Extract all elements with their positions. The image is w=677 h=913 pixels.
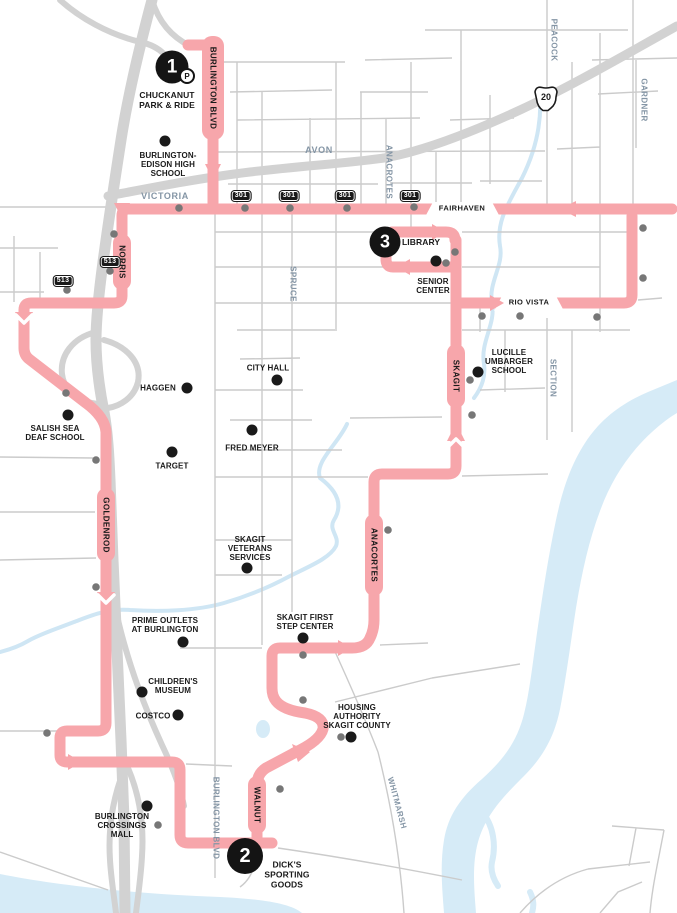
stop-dot [337,733,345,741]
landmark-dot-target [167,447,178,458]
stop-dot [343,204,351,212]
arrow-east-firststep [338,640,352,656]
stop-dot [466,376,474,384]
landmark-label-fred-meyer: FRED MEYER [225,443,278,452]
stop-dot [63,286,71,294]
street-label-burlington-blvd-south: BURLINGTON BLVD [211,777,220,860]
landmark-dot-senior-center [431,256,442,267]
landmark-label-housing-authority: HOUSING AUTHORITY SKAGIT COUNTY [323,703,391,731]
stop-dot [106,267,114,275]
route-513-shield: 513 [101,257,120,267]
stop-dot [384,526,392,534]
stop-number: 2 [239,845,250,868]
route-301-shield: 301 [336,191,355,201]
street-label-anacortes: ANACORTES [369,528,378,582]
landmark-dot-salish [63,410,74,421]
street-label-spruce: SPRUCE [288,266,297,302]
landmark-dot-high-school [160,136,171,147]
landmark-label-lucille-umbarger: LUCILLE UMBARGER SCHOOL [485,348,533,376]
landmark-dot-prime-outlets [178,637,189,648]
route-301-shield: 301 [280,191,299,201]
stop-number: 1 [167,56,178,78]
route-rio-vista [456,216,632,303]
stop-dot [593,313,601,321]
street-label-goldenrod: GOLDENROD [101,497,110,553]
landmark-dot-first-step [298,633,309,644]
stop-dot [92,456,100,464]
street-label-gardner: GARDNER [639,78,648,121]
stop-label-library: LIBRARY [402,238,440,248]
landmark-label-prime-outlets: PRIME OUTLETS AT BURLINGTON [132,616,199,634]
street-label-avon: AVON [305,145,333,155]
stop-dot [62,389,70,397]
landmark-label-target: TARGET [156,461,189,470]
arrow-east-bottom [68,754,82,770]
route-housing-hook [272,240,456,753]
landmark-dot-mall [142,801,153,812]
street-label-rio-vista: RIO VISTA [509,299,550,308]
street-label-anacrotes: ANACROTES [384,145,393,199]
landmark-label-skagit-veterans: SKAGIT VETERANS SERVICES [228,535,272,563]
landmark-dot-costco [173,710,184,721]
river-bottom-band [0,874,302,913]
stop-marker-2[interactable]: 2 [227,838,263,874]
street-label-fairhaven: FAIRHAVEN [439,205,485,214]
park-and-ride-letter: P [184,72,189,81]
landmark-dot-city-hall [272,375,283,386]
stop-dot [451,248,459,256]
landmark-dot-fred-meyer [247,425,258,436]
stop-dot [410,203,418,211]
river-braid [482,812,533,913]
landmark-dot-lucille [473,367,484,378]
skagit-river [442,380,677,913]
street-label-victoria: VICTORIA [141,191,189,201]
arrow-west-fairhaven [560,201,576,217]
stop-dot [516,312,524,320]
stop-dot [92,583,100,591]
street-label-peacock: PEACOCK [549,19,558,62]
landmark-dot-skagit-vets [242,563,253,574]
stop-dot [478,312,486,320]
stop-dot [468,411,476,419]
landmark-label-burlington-crossings: BURLINGTON CROSSINGS MALL [95,812,149,840]
stop-dot [110,230,118,238]
park-and-ride-icon: P [179,68,195,84]
stop-number: 3 [380,232,390,253]
landmark-label-childrens-museum: CHILDREN'S MUSEUM [148,677,198,695]
stop-dot [276,785,284,793]
street-label-burlington-blvd-north: BURLINGTON BLVD [208,47,217,130]
stop-dot [154,821,162,829]
stop-dot [241,204,249,212]
stop-dot [442,259,450,267]
street-label-skagit: SKAGIT [451,360,460,393]
map-canvas [0,0,677,913]
stop-dot [639,274,647,282]
route-513-shield: 513 [54,276,73,286]
street-label-section: SECTION [548,359,557,397]
stop-dot [299,651,307,659]
stop-dot [286,204,294,212]
stop-label-chuckanut-park-and-ride: CHUCKANUT PARK & RIDE [139,91,195,111]
landmark-label-first-step: SKAGIT FIRST STEP CENTER [277,613,334,631]
stop-dot [299,696,307,704]
stop-label-dicks-sporting-goods: DICK'S SPORTING GOODS [264,860,309,889]
landmark-dot-housing [346,732,357,743]
landmark-label-city-hall: CITY HALL [247,363,290,372]
stop-marker-3[interactable]: 3 [370,227,401,258]
route-301-shield: 301 [401,191,420,201]
route-301-shield: 301 [232,191,251,201]
landmark-dot-childrens-museum [137,687,148,698]
pond [256,720,270,738]
landmark-dot-haggen [182,383,193,394]
arrow-west-library-in [396,259,410,275]
street-label-walnut: WALNUT [252,787,261,824]
landmark-label-haggen: HAGGEN [140,383,176,392]
highway-20-shield: 20 [533,84,559,112]
stop-dot [175,204,183,212]
landmark-label-senior-center: SENIOR CENTER [416,277,450,295]
stop-dot [43,729,51,737]
landmark-label-salish-sea: SALISH SEA DEAF SCHOOL [25,424,84,442]
highway-20-number: 20 [533,92,559,102]
landmark-label-costco: COSTCO [136,711,171,720]
stop-dot [639,224,647,232]
landmark-label-high-school: BURLINGTON- EDISON HIGH SCHOOL [140,151,197,179]
transit-route-map: 1 P 2 3 CHUCKANUT PARK & RIDE DICK'S SPO… [0,0,677,913]
